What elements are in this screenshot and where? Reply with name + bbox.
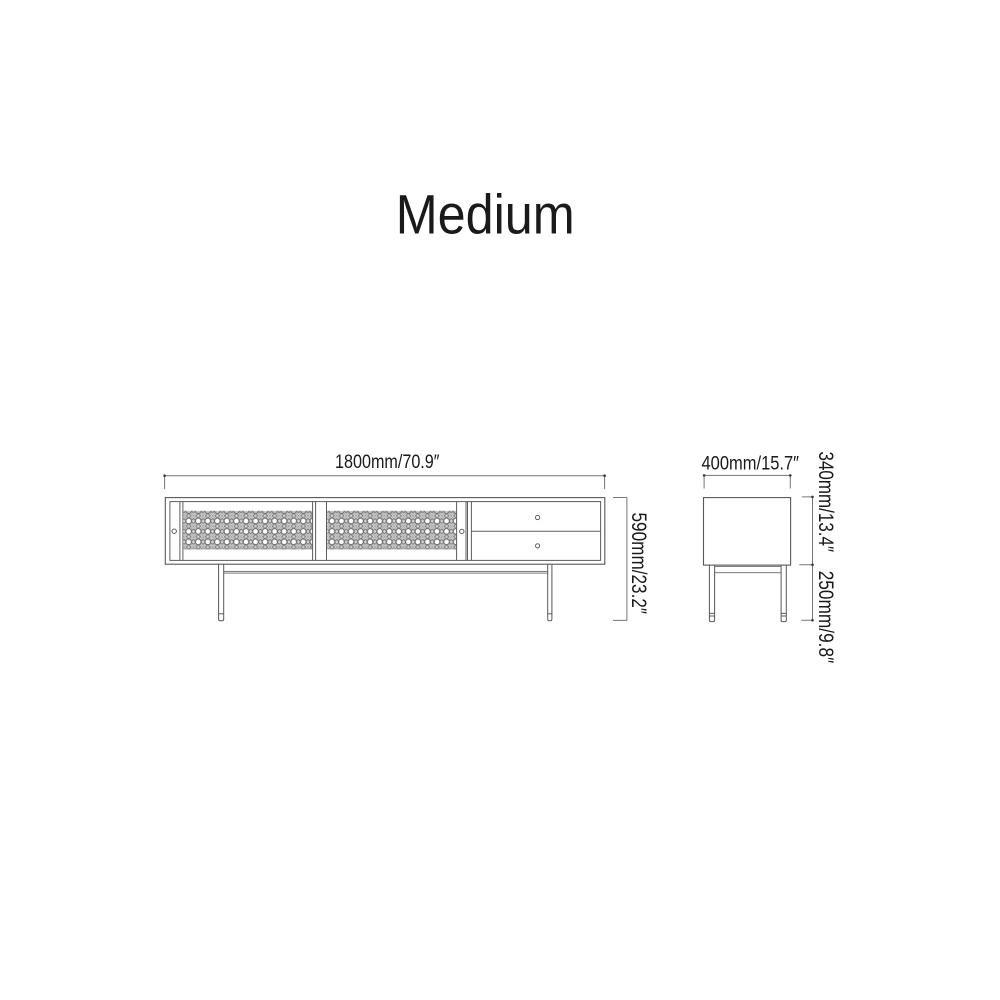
svg-text:400mm/15.7″: 400mm/15.7″ (702, 454, 800, 475)
svg-text:340mm/13.4″: 340mm/13.4″ (814, 452, 838, 553)
svg-text:590mm/23.2″: 590mm/23.2″ (627, 513, 651, 615)
svg-text:1800mm/70.9″: 1800mm/70.9″ (335, 452, 440, 473)
svg-text:Medium: Medium (396, 182, 575, 245)
svg-text:250mm/9.8″: 250mm/9.8″ (814, 571, 838, 664)
